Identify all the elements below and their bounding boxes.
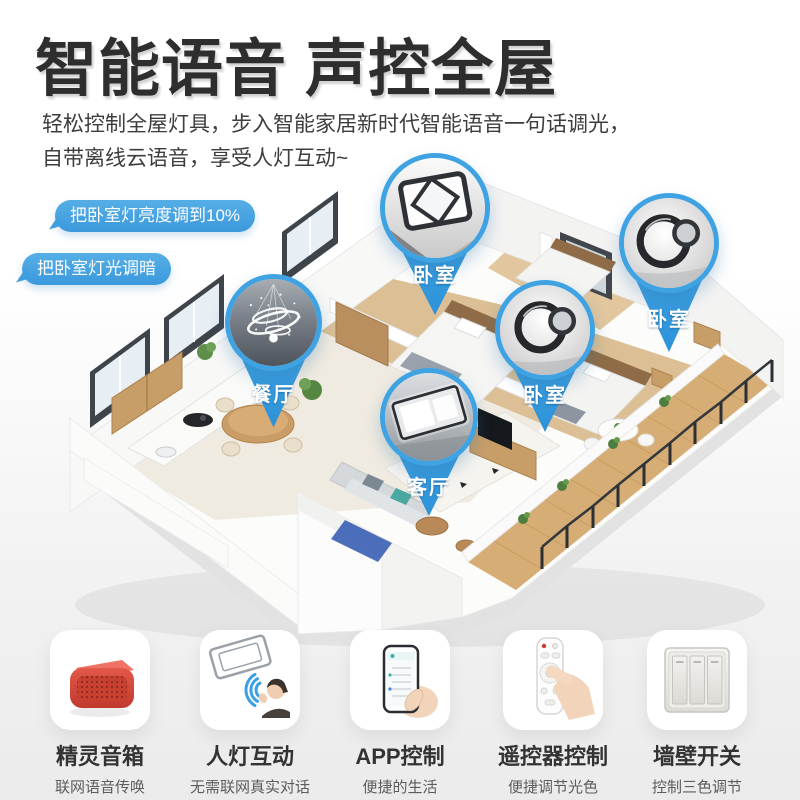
- feature-subtitle: 便捷调节光色: [478, 776, 628, 797]
- feature-app-control: APP控制 便捷的生活: [325, 630, 475, 797]
- voice-interaction-icon: [200, 630, 300, 730]
- feature-subtitle: 控制三色调节: [622, 776, 772, 797]
- wall-switch-icon: [647, 630, 747, 730]
- feature-subtitle: 无需联网真实对话: [175, 776, 325, 797]
- feature-title: 墙壁开关: [622, 739, 772, 771]
- feature-remote-control: 遥控器控制 便捷调节光色: [478, 630, 628, 797]
- feature-voice-interaction: 人灯互动 无需联网真实对话: [175, 630, 325, 797]
- smart-speaker-icon: [50, 630, 150, 730]
- feature-wall-switch: 墙壁开关 控制三色调节: [622, 630, 772, 797]
- square-ceiling-light-photo: [380, 153, 490, 263]
- feature-smart-speaker: 精灵音箱 联网语音传唤: [25, 630, 175, 797]
- ring-chandelier-photo: [225, 274, 322, 371]
- ring-ceiling-light-photo: [619, 193, 719, 293]
- feature-title: 遥控器控制: [478, 739, 628, 771]
- pin-label: 卧室: [495, 379, 595, 408]
- rect-ceiling-light-photo: [380, 368, 478, 466]
- feature-title: APP控制: [325, 739, 475, 771]
- feature-title: 精灵音箱: [25, 739, 175, 771]
- feature-subtitle: 联网语音传唤: [25, 776, 175, 797]
- feature-subtitle: 便捷的生活: [325, 776, 475, 797]
- feature-title: 人灯互动: [175, 739, 325, 771]
- pin-label: 客厅: [380, 471, 478, 500]
- pin-label: 卧室: [619, 303, 719, 332]
- ring-ceiling-light-photo: [495, 280, 595, 380]
- app-phone-icon: [350, 630, 450, 730]
- remote-control-icon: [503, 630, 603, 730]
- pin-label: 餐厅: [225, 378, 322, 407]
- pin-label: 卧室: [380, 259, 490, 288]
